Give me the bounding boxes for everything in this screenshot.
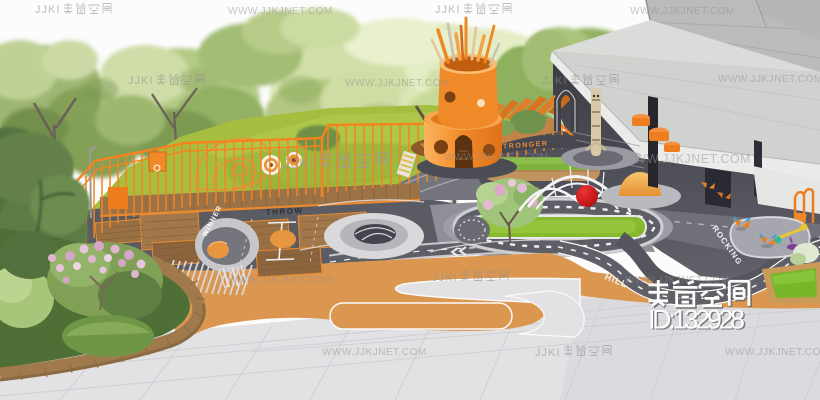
svg-text:JJKI: JJKI xyxy=(35,4,60,16)
svg-text:WWW.JJKJNET.COM: WWW.JJKJNET.COM xyxy=(228,6,333,17)
svg-text:WWW.JJKJNET.COM: WWW.JJKJNET.COM xyxy=(345,78,450,89)
svg-text:WWW.JJKJNET.COM: WWW.JJKJNET.COM xyxy=(622,152,751,166)
svg-text:JJKI: JJKI xyxy=(535,347,560,359)
svg-text:JJKI: JJKI xyxy=(432,272,457,284)
svg-text:JJKI: JJKI xyxy=(435,4,460,16)
svg-text:WWW.JJKJNET.COM: WWW.JJKJNET.COM xyxy=(322,347,427,358)
svg-text:WWW.JJKJNET.COM: WWW.JJKJNET.COM xyxy=(725,347,820,358)
svg-text:WWW.JJKJNET.COM: WWW.JJKJNET.COM xyxy=(228,275,333,286)
svg-text:JJKI: JJKI xyxy=(283,155,314,171)
svg-text:WWW.JJKJNET.COM: WWW.JJKJNET.COM xyxy=(718,74,820,85)
svg-text:JJKI: JJKI xyxy=(128,75,153,87)
svg-text:JJKI: JJKI xyxy=(542,75,567,87)
svg-text:WWW.JJKJNET.COM: WWW.JJKJNET.COM xyxy=(630,6,735,17)
svg-text:WWW.JJKJNET.COM: WWW.JJKJNET.COM xyxy=(444,152,549,163)
svg-text:ID:132928: ID:132928 xyxy=(648,305,745,335)
